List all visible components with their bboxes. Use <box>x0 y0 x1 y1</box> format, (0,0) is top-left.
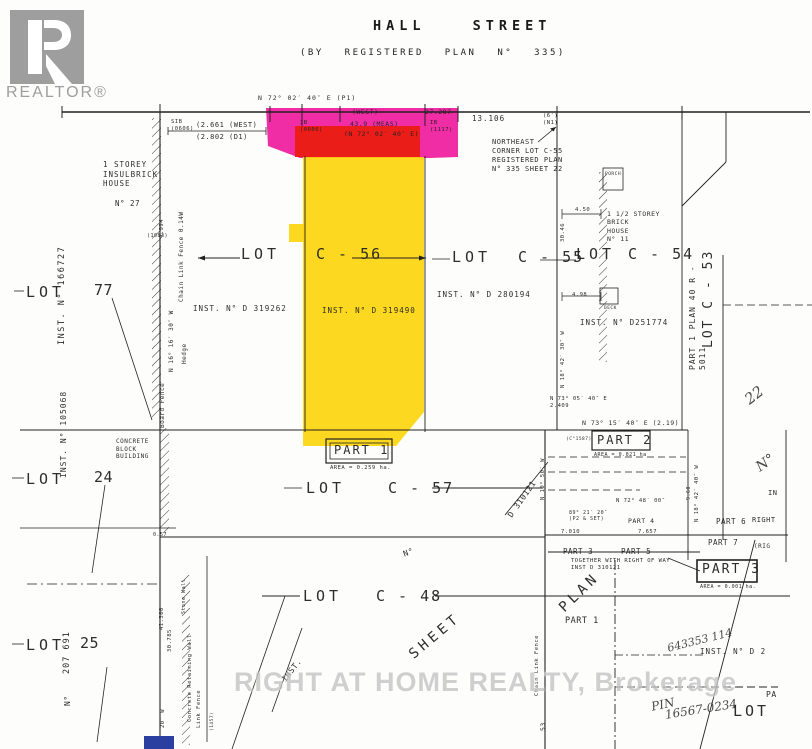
map-label: N 73° 15′ 40″ E (2.19) <box>582 419 679 427</box>
map-label: N 72° 48′ 00″ <box>616 498 666 505</box>
inst-d319262: INST. N° D 319262 <box>193 304 287 314</box>
map-label: Chain Link Fence 0.14W <box>178 212 186 302</box>
map-label: 27.287 <box>425 108 451 116</box>
lot-24-number: 24 <box>94 468 113 487</box>
lot-c54-number: C - 54 <box>628 245 694 264</box>
map-label: SIB (0606) <box>171 119 194 133</box>
part1-plan-strip: PART 1 PLAN 40 R - 5011 <box>688 246 708 370</box>
lot-c56-number: C - 56 <box>316 245 382 264</box>
map-label: Hedge <box>181 343 189 364</box>
map-label: N° <box>753 451 779 477</box>
map-label: (N 72° 02′ 40″ E) <box>344 130 419 138</box>
map-label: (6′) (N1) <box>543 113 558 127</box>
northeast-corner-note: NORTHEAST CORNER LOT C-55 REGISTERED PLA… <box>492 138 563 174</box>
part-2-area: AREA = 0.021 ha <box>594 452 647 458</box>
map-label: 53 <box>539 722 547 731</box>
map-label: (2.661 (WEST) <box>196 121 257 130</box>
map-label: IB (1117) <box>430 120 453 134</box>
map-label: PART 1 <box>565 616 599 627</box>
lot-25-label: LOT <box>26 636 65 655</box>
map-label: 9.60 <box>686 486 692 500</box>
map-label: N° <box>402 546 415 559</box>
lot-c56-label: LOT <box>241 245 280 264</box>
map-label: D 310121 <box>506 479 539 520</box>
map-label: 89° 21′ 20″ (P2 & SET) <box>569 510 608 523</box>
map-label: N 72° 02′ 40″ E (P1) <box>258 94 356 102</box>
map-label: RIGHT <box>752 516 776 525</box>
map-label: N 10° 50′ W <box>540 458 547 500</box>
map-label: 1 STOREY INSULBRICK HOUSE <box>103 160 158 189</box>
inst-d2: INST. N° D 2 <box>700 647 766 657</box>
lot-c48-label: LOT <box>303 587 342 606</box>
map-label: Stone Wall <box>181 579 187 614</box>
inst-d280194: INST. N° D 280194 <box>437 290 531 300</box>
map-label: 1 1/2 STOREY BRICK HOUSE N° 11 <box>607 210 660 243</box>
map-label: 30.46 <box>560 223 567 242</box>
part-1-area: AREA = 0.259 ha. <box>330 465 391 472</box>
map-label: 7.010 <box>561 529 580 536</box>
map-label: N° <box>63 695 73 706</box>
map-label: 0.57 <box>153 532 167 538</box>
inst-207691: 207 691 <box>62 631 73 674</box>
map-label: PA <box>766 690 777 700</box>
sheet-diagonal: SHEET <box>406 610 465 664</box>
inst-d251774: INST. N° D251774 <box>580 318 668 328</box>
map-label: Concrete Retaining Wall <box>187 634 194 722</box>
map-label: (1083) <box>147 233 168 239</box>
annotation-layer: N 72° 02′ 40″ E (P1)(WEST)27.28713.106(2… <box>0 0 812 749</box>
map-label: 4.50 <box>575 207 590 214</box>
inst-105068: INST. N° 105068 <box>59 391 69 478</box>
inst-d319490: INST. N° D 319490 <box>322 306 416 316</box>
map-label: N° 27 <box>115 199 140 209</box>
lot-bottom-right: LOT <box>733 702 769 721</box>
map-label: PART 4 <box>628 517 654 525</box>
watermark: RIGHT AT HOME REALTY, Brokerage <box>234 667 737 698</box>
map-label: IN <box>768 489 777 498</box>
map-label: N 18° 42′ 30″ W <box>560 331 567 388</box>
lot-25-number: 25 <box>80 634 99 653</box>
map-label: DECK <box>604 306 617 312</box>
part-1-label: PART 1 <box>334 443 389 458</box>
part-7-label: PART 7 <box>708 538 738 548</box>
map-label: (RIG <box>754 543 770 551</box>
map-label: (2.802 (D1) <box>196 133 248 142</box>
map-label: 4.98 <box>572 292 587 299</box>
map-label: N 73° 05′ 40″ E 2.409 <box>550 396 607 410</box>
lot-c55-number: C - 55 <box>518 248 584 267</box>
survey-plan-page: REALTOR® HALL STREET (BY REGISTERED PLAN… <box>0 0 812 749</box>
map-label: 41.300 <box>159 607 166 630</box>
map-label: 7.657 <box>638 529 657 536</box>
map-label: (WEST) <box>352 108 378 116</box>
map-label: TOGETHER WITH RIGHT OF WAY INST D 310121 <box>571 558 670 572</box>
lot-c57-number: C - 57 <box>388 479 454 498</box>
part-5-label: PART 5 <box>621 547 651 557</box>
lot-c54-label: LOT <box>576 245 615 264</box>
map-label: Link Fence <box>196 690 203 728</box>
map-label: PORCH <box>605 172 621 178</box>
lot-c48-number: C - 48 <box>376 587 442 606</box>
lot-c55-label: LOT <box>452 248 491 267</box>
map-label: (1457) <box>210 712 216 731</box>
lot-22-number: 22 <box>741 382 768 409</box>
map-label: N 18° 42′ 40″ W <box>694 465 701 522</box>
plan-diagonal: PLAN <box>556 569 604 616</box>
part-2-label: PART 2 <box>597 433 652 448</box>
lot-c57-label: LOT <box>306 479 345 498</box>
map-label: N 16° 16′ 30″ W <box>168 310 176 372</box>
map-label: 13.106 <box>472 114 505 124</box>
map-label: CONCRETE BLOCK BUILDING <box>116 438 149 461</box>
part-3-area: AREA = 0.001 ha. <box>700 584 756 590</box>
handwritten-pin-number: 16567-0234 <box>664 697 738 724</box>
map-label: (C°1587) <box>566 437 592 443</box>
part-3-small-label: PART 3 <box>563 547 593 557</box>
map-label: IB (0606) <box>300 120 323 134</box>
map-label: 43.9 (MEAS) <box>350 120 399 128</box>
lot-77-label: LOT <box>26 283 65 302</box>
map-label: 30.785 <box>167 629 174 652</box>
map-label: Board Fence <box>159 383 167 428</box>
part-6-label: PART 6 <box>716 517 746 527</box>
part-3-label: PART 3 <box>702 562 761 579</box>
lot-77-number: 77 <box>94 281 113 300</box>
map-label: 20′ W <box>160 709 167 728</box>
